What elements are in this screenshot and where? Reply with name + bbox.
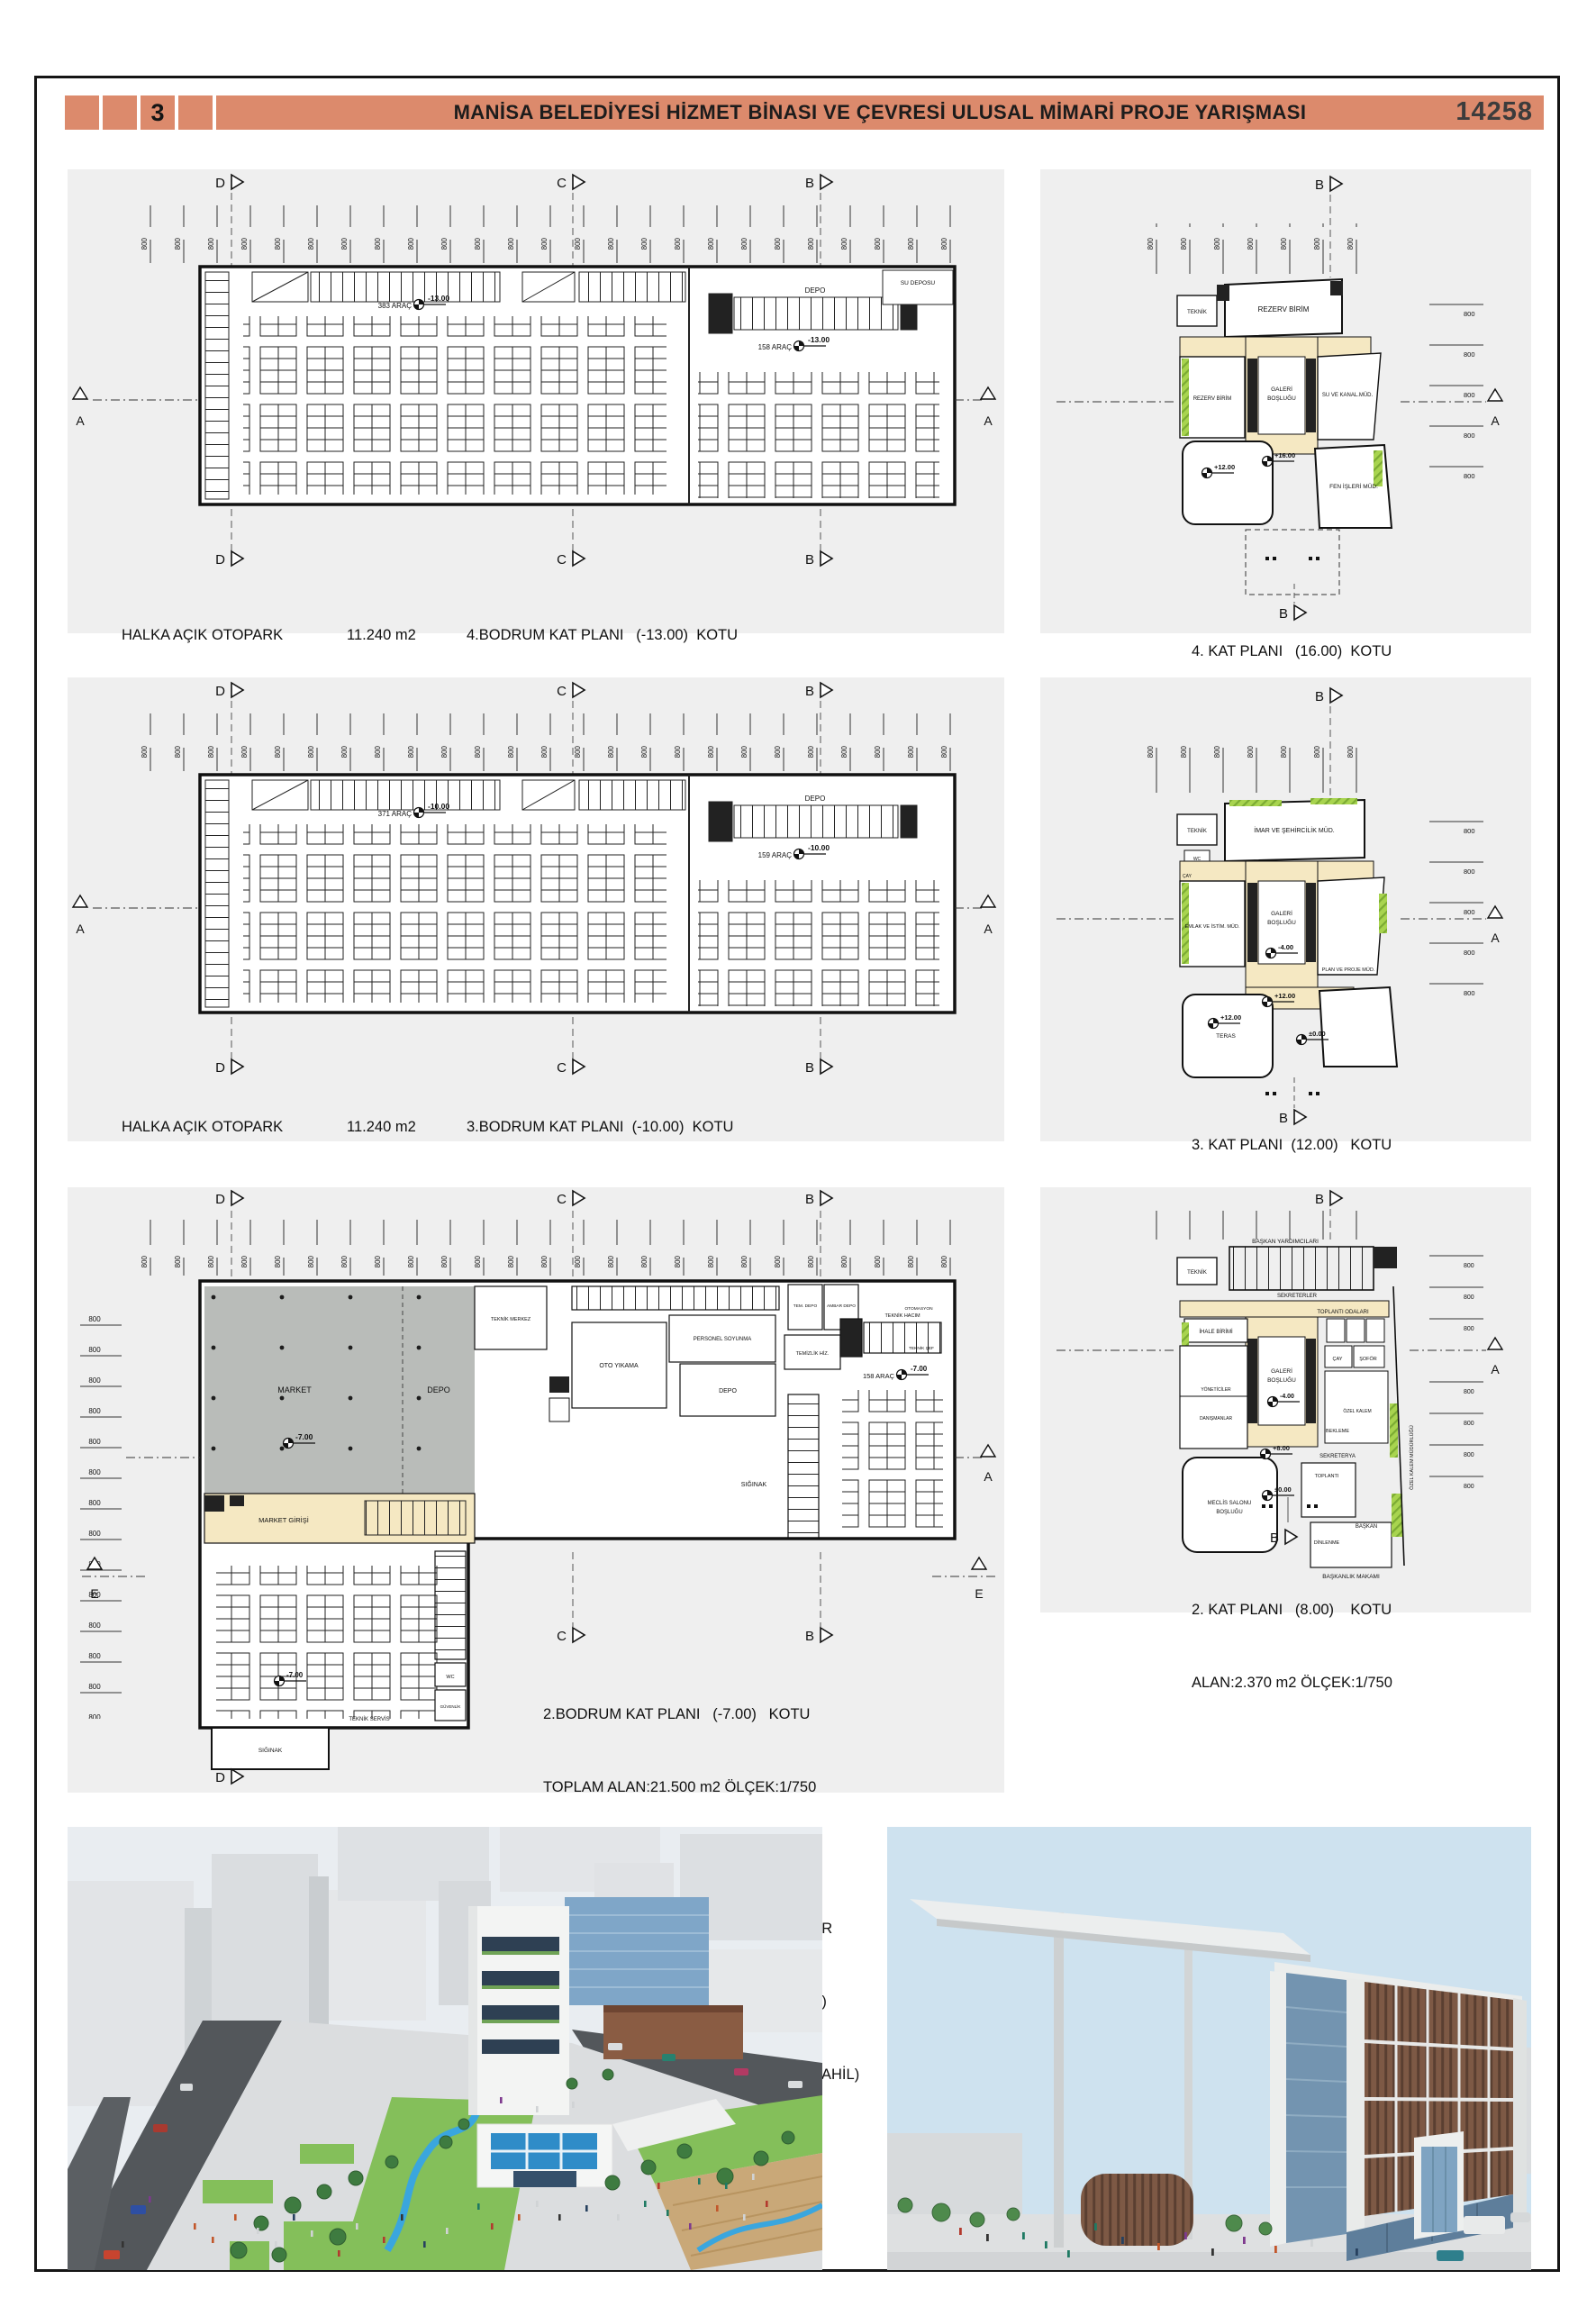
section-marker-b-bottom: B [805,1059,832,1076]
plan-caption-line2: ALAN:2.370 m2 ÖLÇEK:1/750 [1192,1671,1392,1695]
stat-label: HALKA AÇIK OTOPARK [122,623,347,648]
svg-text:800: 800 [1464,1263,1474,1269]
render-street-view [887,1827,1531,2270]
wing-core [435,1551,466,1721]
render-street-svg [887,1827,1531,2270]
floor2-caption: 2. KAT PLANI (8.00) KOTU ALAN:2.370 m2 Ö… [1192,1549,1392,1720]
room-label-toplanti-odalari: TOPLANTI ODALARI [1317,1310,1369,1315]
section-marker-c: C [557,1191,585,1207]
svg-text:800: 800 [1464,949,1475,957]
svg-text:±0.00: ±0.00 [1309,1030,1326,1038]
level-side: -13.00 [808,335,830,344]
header-box-1 [65,95,99,130]
svg-text:+8.00: +8.00 [1273,1444,1290,1452]
svg-text:D: D [215,176,225,191]
level-main: -10.00 [428,802,449,811]
room-label-imar: İMAR VE ŞEHİRCİLİK MÜD. [1254,826,1335,834]
room-label-galeri2: BOŞLUĞU [1267,394,1296,402]
section-marker-d: D [215,175,243,191]
plan-caption-line1: 3. KAT PLANI (12.00) KOTU [1192,1133,1392,1158]
room-label-ambar-depo: AMBAR DEPO [827,1303,856,1309]
svg-text:A: A [1491,1362,1500,1376]
svg-text:800: 800 [1464,1452,1474,1458]
board-number: 3 [141,95,175,130]
room-label-depo: DEPO [427,1385,450,1394]
section-marker-c: C [557,175,585,191]
room-label-yoneticiler: YÖNETİCİLER [1201,1386,1231,1393]
svg-text:B: B [805,1060,814,1076]
market-entrance [204,1494,475,1543]
svg-text:800: 800 [1464,1294,1474,1301]
section-arrow-a-right: A [955,895,995,936]
parking-wing [216,1566,446,1719]
room-label-oto-yikama: OTO YIKAMA [599,1363,639,1369]
panel-floor4-plan: B REZERV BİRİM TEKNİK GALERİ BOŞLUĞU REZ… [1040,169,1531,633]
room-label-emlak: EMLAK VE İSTİM. MÜD. [1185,923,1240,930]
svg-text:800: 800 [1464,350,1475,359]
room-label-depo: DEPO [805,286,826,295]
svg-text:A: A [984,1469,993,1484]
plan-caption-line1: 4.BODRUM KAT PLANI (-13.00) KOTU [467,623,739,648]
svg-text:B: B [805,684,814,699]
section-marker-d: D [215,683,243,699]
room-label-siginak: SIĞINAK [741,1480,767,1488]
section-arrow-a-right: A [955,387,995,428]
svg-text:-7.00: -7.00 [286,1671,304,1679]
header-bar: MANİSA BELEDİYESİ HİZMET BİNASI VE ÇEVRE… [216,95,1544,130]
car-count-main: 371 ARAÇ [378,810,413,818]
plan-caption-line1: 2.BODRUM KAT PLANI (-7.00) KOTU [543,1703,998,1727]
room-label-galeri: GALERİ [1271,909,1292,917]
svg-text:A: A [1491,931,1500,945]
plan-caption-line1: 2. KAT PLANI (8.00) KOTU [1192,1598,1392,1622]
svg-text:±0.00: ±0.00 [1274,1485,1292,1494]
room-label-rezerv-top: REZERV BİRİM [1258,305,1310,313]
room-label-ozel-kalem: ÖZEL KALEM [1343,1408,1371,1414]
room-label-teknik: TEKNİK [1187,1269,1207,1276]
svg-text:800: 800 [1464,908,1475,916]
stat-label: HALKA AÇIK OTOPARK [122,1115,347,1140]
svg-text:A: A [1491,413,1500,428]
svg-text:D: D [215,684,225,699]
room-label-depo: DEPO [805,795,826,803]
car-count-main: 383 ARAÇ [378,302,413,310]
svg-text:B: B [1270,1530,1279,1546]
section-marker-b: B [805,683,832,699]
project-number: 14258 [1455,97,1533,127]
room-label-teknik: TEKNİK [1187,828,1207,834]
dimension-ticks-top [122,1220,955,1276]
svg-text:+12.00: +12.00 [1220,1013,1241,1022]
section-marker-b-bottom: B [805,1628,832,1644]
room-label-wc: WC [1193,857,1202,862]
dimension-ticks [1138,223,1368,274]
room-label-galeri2: BOŞLUĞU [1267,918,1296,926]
room-label-ozel-kalem-mud: ÖZEL KALEM MÜDÜRLÜĞÜ [1409,1425,1415,1490]
basement4-plan-drawing: D C B DEPO SU DEPOSU 383 ARAÇ -13.00 158… [68,169,1004,633]
room-label-bekleme: BEKLEME [1326,1429,1349,1434]
header-box-2 [103,95,137,130]
room-label-market: MARKET [277,1385,312,1394]
svg-text:+12.00: +12.00 [1274,992,1295,1000]
floor4-plan-drawing: B REZERV BİRİM TEKNİK GALERİ BOŞLUĞU REZ… [1040,169,1531,633]
svg-text:E: E [975,1586,983,1601]
svg-text:C: C [557,552,567,568]
room-label-market-girisi: MARKET GİRİŞİ [258,1516,309,1524]
section-marker-b-bottom: B [805,551,832,568]
svg-text:800: 800 [1464,472,1475,480]
svg-text:A: A [984,413,993,428]
car-count-side: 158 ARAÇ [863,1372,895,1380]
right-dimension-labels: 800800800800800800800 [1464,1263,1474,1490]
right-dimension-labels: 800800800800800 [1464,310,1475,480]
room-label-teknik-hacim: TEKNİK HACIM [884,1312,920,1319]
room-label-wc: WC [446,1675,454,1680]
right-dimension-ticks [1429,1256,1483,1476]
svg-text:+16.00: +16.00 [1274,451,1295,459]
room-label-cay: ÇAY [1183,874,1192,879]
svg-text:A: A [76,922,85,936]
dimension-ticks [1138,742,1368,793]
board-number-label: 3 [150,99,164,127]
car-count-side: 159 ARAÇ [758,851,793,859]
section-arrow-a-right: A [1401,389,1502,428]
room-label-galeri2: BOŞLUĞU [1267,1376,1296,1384]
panel-basement4-plan: D C B DEPO SU DEPOSU 383 ARAÇ -13.00 158… [68,169,1004,633]
section-arrow-a-left: A [73,387,200,428]
room-label-siginak-alt: SIĞINAK [258,1746,283,1754]
section-marker-c-bottom: C [557,1628,585,1644]
svg-text:D: D [215,1192,225,1207]
room-label-dinlenme: DİNLENME [1314,1540,1340,1546]
svg-text:800: 800 [1464,867,1475,876]
panel-basement3-plan: D C B DEPO 371 ARAÇ -10.00 159 ARAÇ -10.… [68,677,1004,1141]
svg-text:-7.00: -7.00 [295,1432,313,1441]
room-label-teknik: TEKNİK [1187,309,1207,315]
level-side: -10.00 [808,843,830,852]
section-marker-d-bottom: D [215,1769,243,1785]
dimension-ticks [1138,1211,1368,1240]
room-label-sekreterler: SEKRETERLER [1277,1294,1318,1299]
svg-text:800: 800 [1464,1389,1474,1395]
right-dimension-ticks [1429,304,1483,467]
room-label-personel: PERSONEL SOYUNMA [694,1337,751,1342]
section-marker-c-bottom: C [557,551,585,568]
svg-text:B: B [805,1629,814,1644]
dimension-ticks [122,713,955,771]
svg-text:800: 800 [1464,391,1475,399]
section-marker-d-bottom: D [215,551,243,568]
room-label-meclis2: BOŞLUĞU [1216,1509,1242,1515]
section-arrow-e-right: E [932,1558,997,1601]
car-count-side: 158 ARAÇ [758,343,793,351]
section-arrow-a-right: A [1410,1338,1502,1376]
section-marker-b: B [805,1191,832,1207]
svg-text:800: 800 [1464,1421,1474,1427]
right-dimension-ticks [1429,822,1483,984]
sidewalk [887,2252,1531,2270]
room-label-tem-depo: TEM. DEPO [793,1303,818,1309]
svg-text:B: B [1315,1192,1324,1207]
svg-text:B: B [1315,689,1324,704]
section-arrow-a-right: A [1401,906,1502,945]
svg-text:C: C [557,176,567,191]
room-label-otomasyon: OTOMASYON [904,1306,933,1312]
panel-floor3-plan: B İMAR VE ŞEHİRCİLİK MÜD. TEKNİK WC ÇAY … [1040,677,1531,1141]
room-label-sofor: ŞOFÖR [1359,1356,1377,1362]
svg-text:800: 800 [1464,989,1475,997]
render-aerial-view [68,1827,822,2270]
render-aerial-svg [68,1827,822,2270]
svg-text:B: B [1315,177,1324,193]
svg-text:A: A [984,922,993,936]
room-label-galeri: GALERİ [1271,1367,1292,1375]
room-label-teknik-servis: TEKNİK SERVİS [349,1716,389,1722]
stat-value: 11.240 m2 [347,623,416,648]
panel-basement2-plan: D C B MARKET DEPO TEKNİK MERKEZ -7.00 MA… [68,1187,1004,1793]
room-label-meclis: MECLİS SALONU [1208,1500,1252,1506]
svg-text:800: 800 [1464,1484,1474,1490]
room-label-depo2: DEPO [719,1388,737,1394]
section-arrow-a-left: A [73,895,200,936]
room-label-danismanlar: DANIŞMANLAR [1200,1416,1233,1421]
drum-volume [1081,2174,1193,2246]
room-label-sekreterya: SEKRETERYA [1319,1454,1356,1459]
room-label-su-kanal: SU VE KANAL.MÜD. [1322,392,1374,398]
competition-title: MANİSA BELEDİYESİ HİZMET BİNASI VE ÇEVRE… [216,101,1544,124]
svg-text:800: 800 [1464,1326,1474,1332]
svg-text:-7.00: -7.00 [911,1365,928,1373]
svg-text:800: 800 [1464,431,1475,440]
panel-floor2-plan: B BAŞKAN YARDIMCILARI TEKNİK SEKRETERLER… [1040,1187,1531,1612]
svg-text:D: D [215,552,225,568]
room-label-ihale: İHALE BİRİMİ [1199,1329,1233,1335]
svg-text:A: A [76,413,85,428]
dimension-ticks-left [78,1295,122,1719]
room-label-su-deposu: SU DEPOSU [901,280,936,286]
building-floor4 [1177,279,1392,595]
room-label-teknik-sef: TEKNİK ŞEF [909,1345,934,1351]
level-main: -13.00 [428,294,449,303]
svg-text:E: E [90,1586,98,1601]
floor3-plan-drawing: B İMAR VE ŞEHİRCİLİK MÜD. TEKNİK WC ÇAY … [1040,677,1531,1141]
svg-text:800: 800 [1464,310,1475,318]
section-marker-b: B [805,175,832,191]
svg-text:B: B [805,552,814,568]
room-label-guvenlik: GÜVENLİK [440,1703,461,1709]
room-label-toplanti: TOPLANTI [1315,1474,1339,1479]
dimension-ticks [122,205,955,263]
room-label-fen: FEN İŞLERİ MÜD. [1329,482,1378,490]
svg-text:-4.00: -4.00 [1278,943,1293,951]
room-label-temizlik: TEMİZLİK HİZ. [796,1350,830,1357]
svg-text:+12.00: +12.00 [1214,463,1235,471]
stat-value: 11.240 m2 [347,1115,416,1140]
plan-caption-line2: TOPLAM ALAN:21.500 m2 ÖLÇEK:1/750 [543,1776,998,1800]
plan-caption-line1: 3.BODRUM KAT PLANI (-10.00) KOTU [467,1115,739,1140]
svg-text:800: 800 [1464,827,1475,835]
svg-text:C: C [557,1629,567,1644]
room-label-teknik-merkez: TEKNİK MERKEZ [491,1316,531,1322]
svg-text:D: D [215,1770,225,1785]
svg-text:B: B [805,1192,814,1207]
room-label-baskan: BAŞKAN [1356,1524,1377,1530]
building-floor3 [1177,798,1397,1077]
svg-text:B: B [805,176,814,191]
header-box-3 [178,95,213,130]
parking-right [842,1390,943,1534]
section-marker-c: C [557,683,585,699]
svg-text:C: C [557,1192,567,1207]
svg-text:-4.00: -4.00 [1280,1394,1294,1400]
section-arrow-a-right: A [955,1445,995,1484]
room-label-rezerv-left: REZERV BİRİM [1193,395,1232,402]
right-dimension-labels: 800800800800800 [1464,827,1475,997]
room-label-teras: TERAS [1216,1033,1236,1040]
room-label-baskan-yrd: BAŞKAN YARDIMCILARI [1252,1239,1319,1245]
room-label-galeri: GALERİ [1271,385,1292,393]
section-marker-d: D [215,1191,243,1207]
room-label-cay: ÇAY [1333,1357,1343,1362]
svg-text:C: C [557,684,567,699]
room-label-plan-proje: PLAN VE PROJE MÜD. [1322,967,1375,973]
plan-caption-line1: 4. KAT PLANI (16.00) KOTU [1192,640,1392,664]
